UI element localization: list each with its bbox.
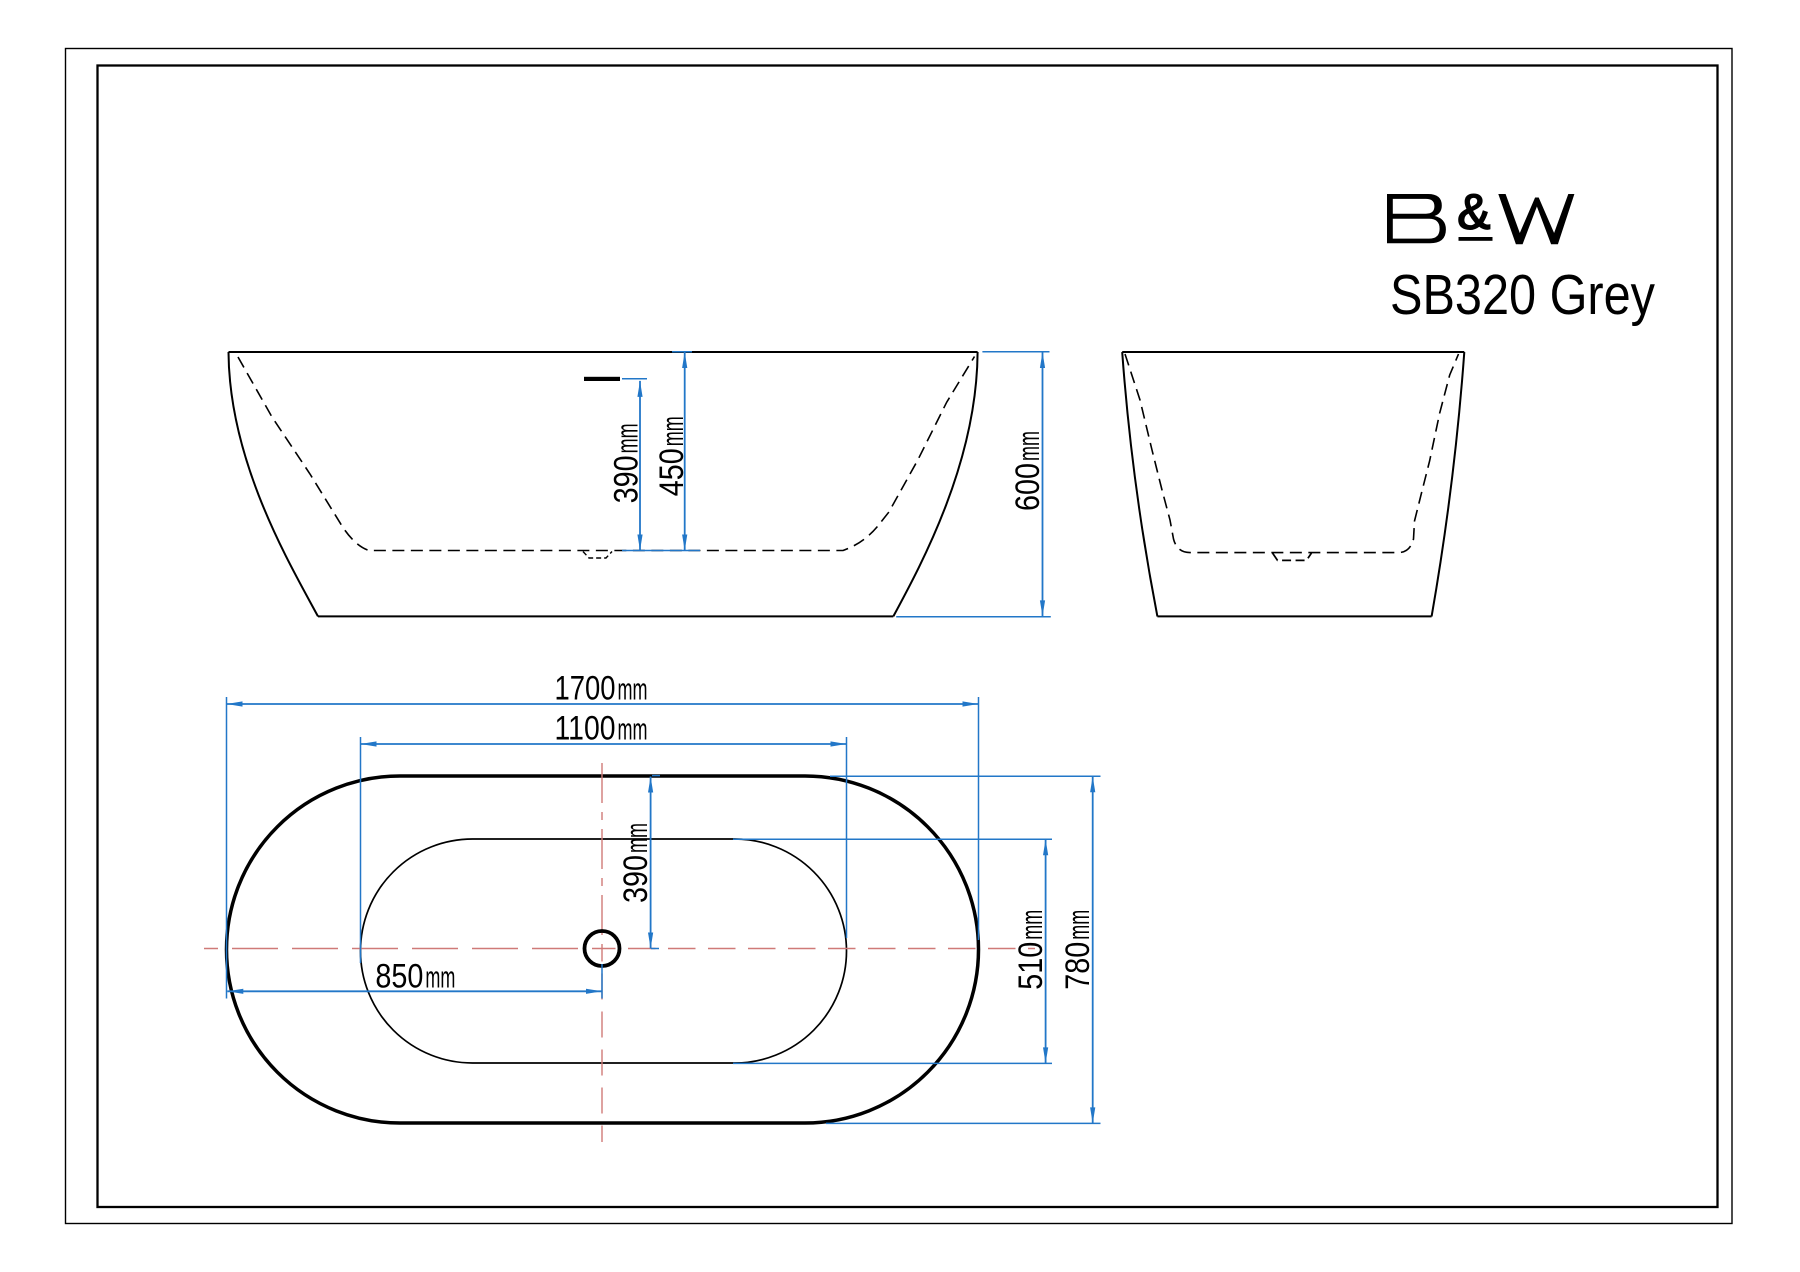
svg-text:600: 600	[1009, 463, 1047, 511]
svg-text:390: 390	[617, 855, 655, 903]
svg-text:mm: mm	[618, 672, 648, 707]
svg-text:450: 450	[653, 448, 691, 496]
svg-text:mm: mm	[1014, 910, 1049, 940]
svg-text:850: 850	[375, 957, 423, 995]
svg-text:mm: mm	[618, 712, 648, 747]
svg-text:1700: 1700	[555, 670, 616, 708]
svg-text:1100: 1100	[555, 710, 616, 748]
svg-text:SB320 Grey: SB320 Grey	[1390, 263, 1655, 327]
svg-text:mm: mm	[610, 423, 645, 453]
svg-text:390: 390	[608, 455, 646, 503]
svg-text:780: 780	[1059, 942, 1097, 990]
svg-text:mm: mm	[1011, 431, 1046, 461]
svg-text:mm: mm	[655, 416, 690, 446]
svg-text:510: 510	[1012, 942, 1050, 990]
svg-text:mm: mm	[425, 959, 455, 994]
svg-text:&: &	[1456, 184, 1492, 242]
svg-text:mm: mm	[619, 823, 654, 853]
svg-text:mm: mm	[1061, 910, 1096, 940]
